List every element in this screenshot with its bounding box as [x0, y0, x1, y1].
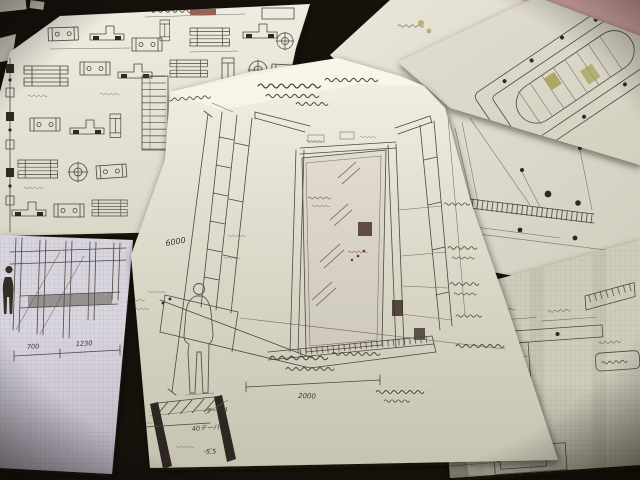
photo-vignette: [0, 0, 640, 480]
drawings-scene: 700 1230: [0, 0, 640, 480]
photo-of-technical-drawings: 700 1230: [0, 0, 640, 480]
